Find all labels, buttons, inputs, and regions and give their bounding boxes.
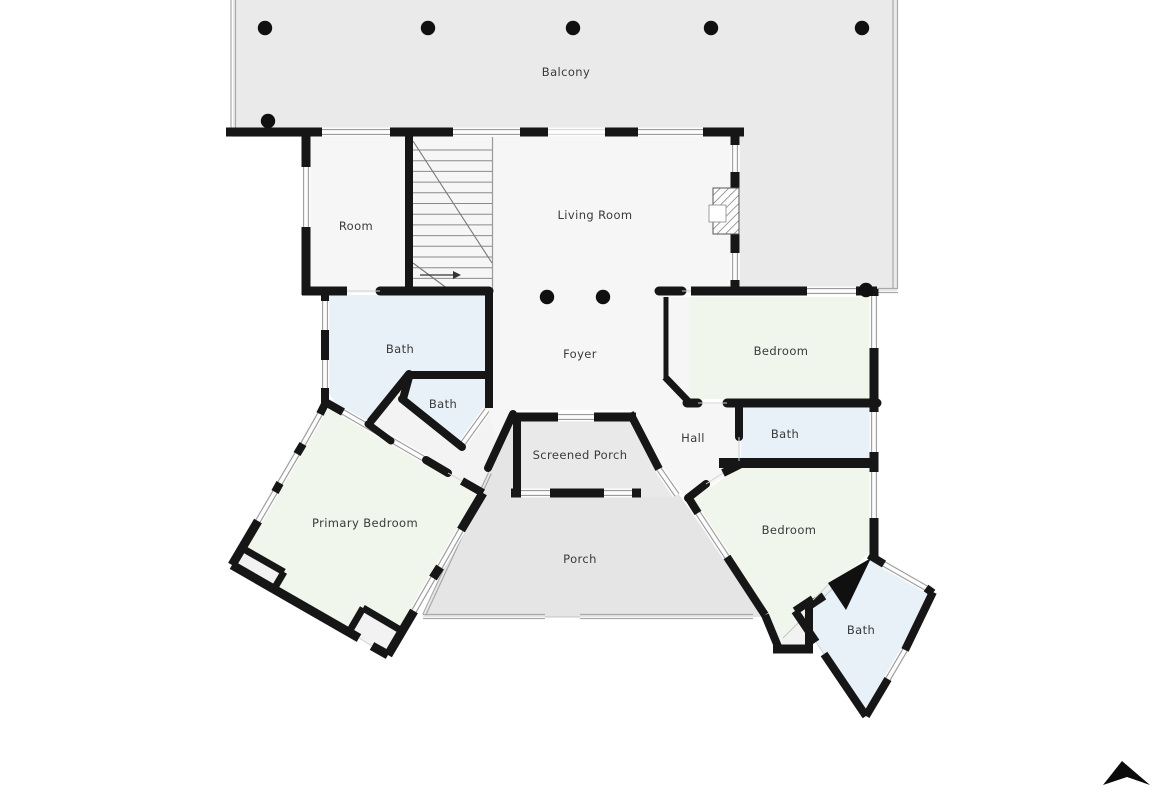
screened-porch-label: Screened Porch bbox=[533, 448, 628, 462]
room-label: Room bbox=[339, 219, 373, 233]
bath-right-area bbox=[741, 405, 873, 460]
foyer-label: Foyer bbox=[563, 347, 597, 361]
north-arrow-icon bbox=[1103, 761, 1150, 785]
wall-segment bbox=[297, 444, 303, 454]
column-marker bbox=[859, 283, 873, 297]
porch-label: Porch bbox=[563, 552, 597, 566]
bath-small-left-label: Bath bbox=[429, 397, 457, 411]
column-marker bbox=[421, 21, 435, 35]
column-marker bbox=[261, 114, 275, 128]
bedroom-upper-right-label: Bedroom bbox=[754, 344, 809, 358]
balcony-label: Balcony bbox=[542, 65, 590, 79]
primary-bedroom-label: Primary Bedroom bbox=[312, 516, 418, 530]
column-marker bbox=[596, 290, 610, 304]
bedroom-lower-right-label: Bedroom bbox=[762, 523, 817, 537]
bath-right-label: Bath bbox=[771, 427, 799, 441]
floor-plan-canvas: Balcony Room Living Room Bath Bath Foyer… bbox=[0, 0, 1170, 785]
bath-lower-right-label: Bath bbox=[847, 623, 875, 637]
column-marker bbox=[258, 21, 272, 35]
bath-upper-left-label: Bath bbox=[386, 342, 414, 356]
wall-segment bbox=[275, 483, 280, 492]
column-marker bbox=[540, 290, 554, 304]
fireplace bbox=[709, 188, 739, 234]
wall-segment bbox=[433, 567, 440, 578]
column-marker bbox=[704, 21, 718, 35]
column-marker bbox=[566, 21, 580, 35]
main-block-floor bbox=[302, 128, 740, 293]
column-marker bbox=[855, 21, 869, 35]
floor-plan-page: Balcony Room Living Room Bath Bath Foyer… bbox=[0, 0, 1170, 785]
living-room-label: Living Room bbox=[558, 208, 633, 222]
hall-label: Hall bbox=[681, 431, 705, 445]
